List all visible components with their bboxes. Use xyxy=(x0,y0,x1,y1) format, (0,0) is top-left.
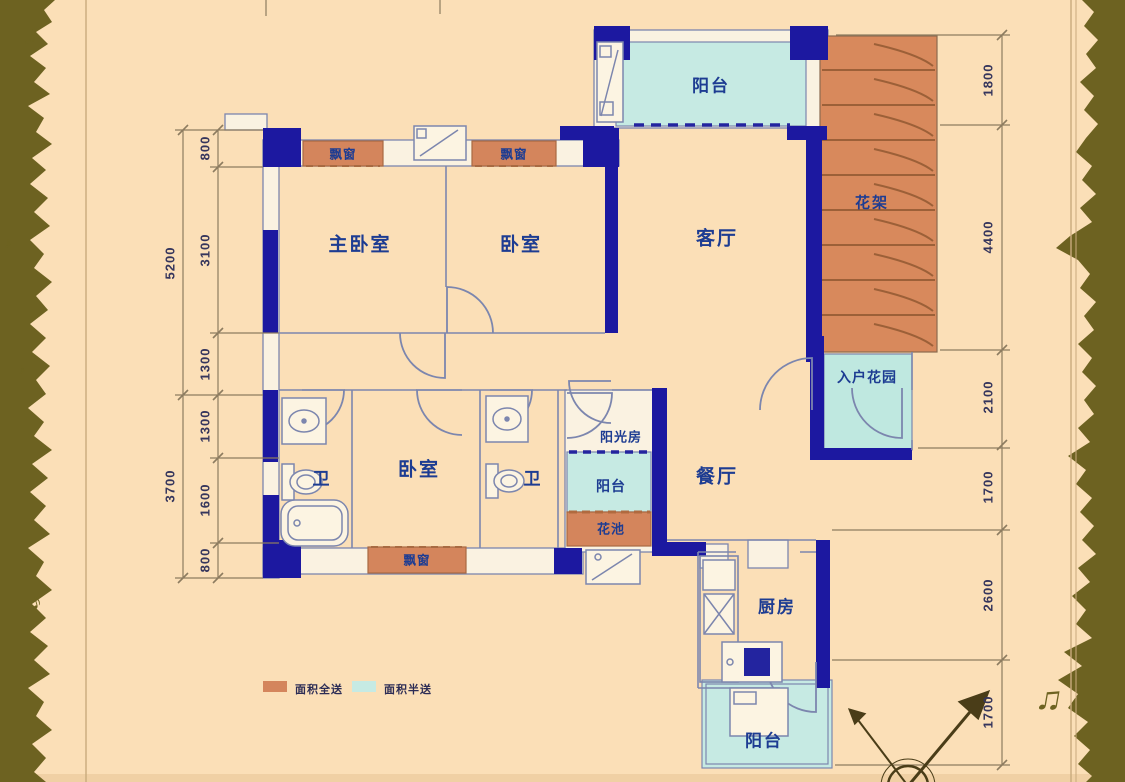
bathtub xyxy=(281,500,348,546)
right-grunge-border xyxy=(1056,0,1125,782)
label-living-room: 客厅 xyxy=(696,224,738,251)
legend-label-half-area: 面积半送 xyxy=(384,681,432,697)
label-dining-room: 餐厅 xyxy=(696,462,738,489)
label-bay-window-bottom: 飘窗 xyxy=(403,550,430,569)
dim-right-2: 2100 xyxy=(981,381,996,414)
dim-right-3: 1700 xyxy=(981,471,996,504)
music-note-icon: ♪ xyxy=(4,236,12,252)
label-flower-rack: 花架 xyxy=(855,192,889,213)
label-bedroom-lower: 卧室 xyxy=(398,455,440,482)
label-balcony-mid: 阳台 xyxy=(596,476,626,496)
dim-right-0: 1800 xyxy=(981,64,996,97)
label-bay-window-top-right: 飘窗 xyxy=(500,144,527,163)
compass-icon xyxy=(850,692,988,782)
dim-left-inner-5: 800 xyxy=(198,548,213,573)
dim-left-inner-3: 1300 xyxy=(198,410,213,443)
label-balcony-bottom: 阳台 xyxy=(745,727,783,752)
floorplan-linework xyxy=(0,0,1125,782)
label-balcony-top: 阳台 xyxy=(692,72,730,97)
dim-left-inner-2: 1300 xyxy=(198,348,213,381)
dim-left-outer-1: 3700 xyxy=(163,470,178,503)
dim-right-1: 4400 xyxy=(981,221,996,254)
decorative-borders xyxy=(0,0,1125,782)
legend-swatch-half-area xyxy=(352,681,376,692)
label-kitchen: 厨房 xyxy=(758,593,796,618)
kitchen-counter-box xyxy=(703,560,735,590)
label-master-bedroom: 主卧室 xyxy=(328,230,391,257)
label-bath-right: 卫 xyxy=(524,465,543,490)
dim-left-inner-1: 3100 xyxy=(198,234,213,267)
dim-left-outer-0: 5200 xyxy=(163,247,178,280)
label-bedroom-top: 卧室 xyxy=(500,230,542,257)
label-bath-left: 卫 xyxy=(313,465,332,490)
label-sunroom: 阳光房 xyxy=(600,427,642,446)
bottom-edge-strip xyxy=(0,774,1125,782)
dim-right-4: 2600 xyxy=(981,579,996,612)
label-bay-window-top-left: 飘窗 xyxy=(329,144,356,163)
dim-right-5: 1700 xyxy=(981,696,996,729)
label-flower-bed: 花池 xyxy=(597,519,625,538)
floorplan-page: 阳台 花架 主卧室 卧室 客厅 飘窗 飘窗 卫 卧室 卫 阳光房 阳台 花池 餐… xyxy=(0,0,1125,782)
label-entry-garden: 入户花园 xyxy=(837,367,897,387)
dim-left-inner-0: 800 xyxy=(198,136,213,161)
left-grunge-border xyxy=(0,0,55,782)
dim-left-inner-4: 1600 xyxy=(198,484,213,517)
legend-label-full-area: 面积全送 xyxy=(295,681,343,697)
legend-swatch-full-area xyxy=(263,681,287,692)
